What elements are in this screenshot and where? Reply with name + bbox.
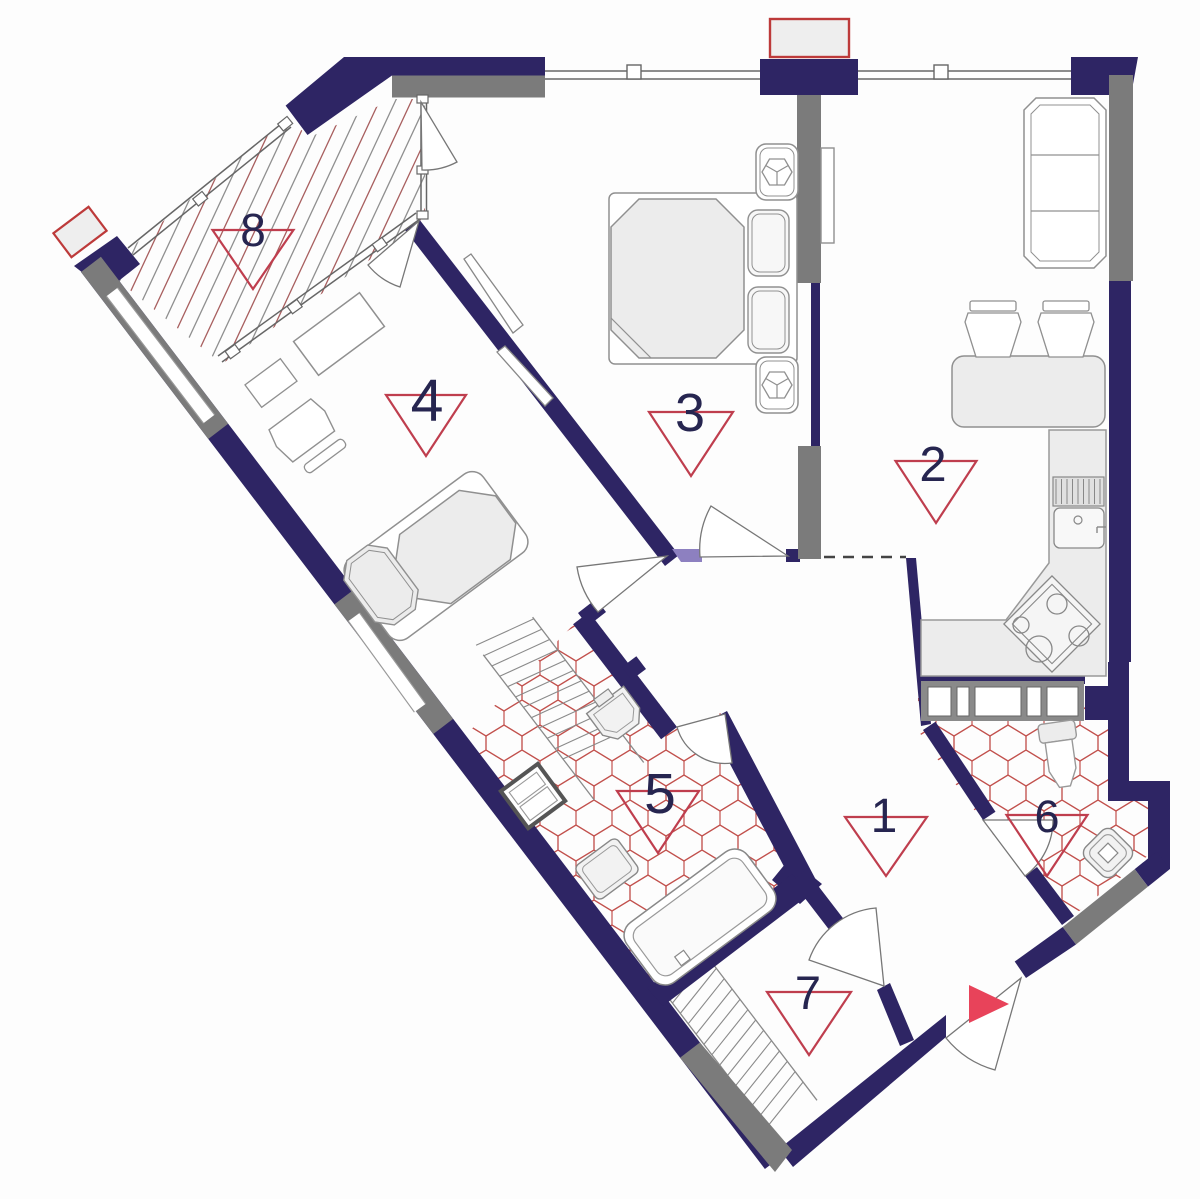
svg-text:6: 6 [1034,791,1059,842]
svg-text:2: 2 [919,438,946,492]
svg-text:1: 1 [871,790,898,843]
svg-text:3: 3 [675,383,705,443]
svg-text:8: 8 [240,204,266,256]
svg-text:5: 5 [644,762,676,826]
svg-text:4: 4 [411,368,444,434]
svg-text:7: 7 [795,966,821,1019]
